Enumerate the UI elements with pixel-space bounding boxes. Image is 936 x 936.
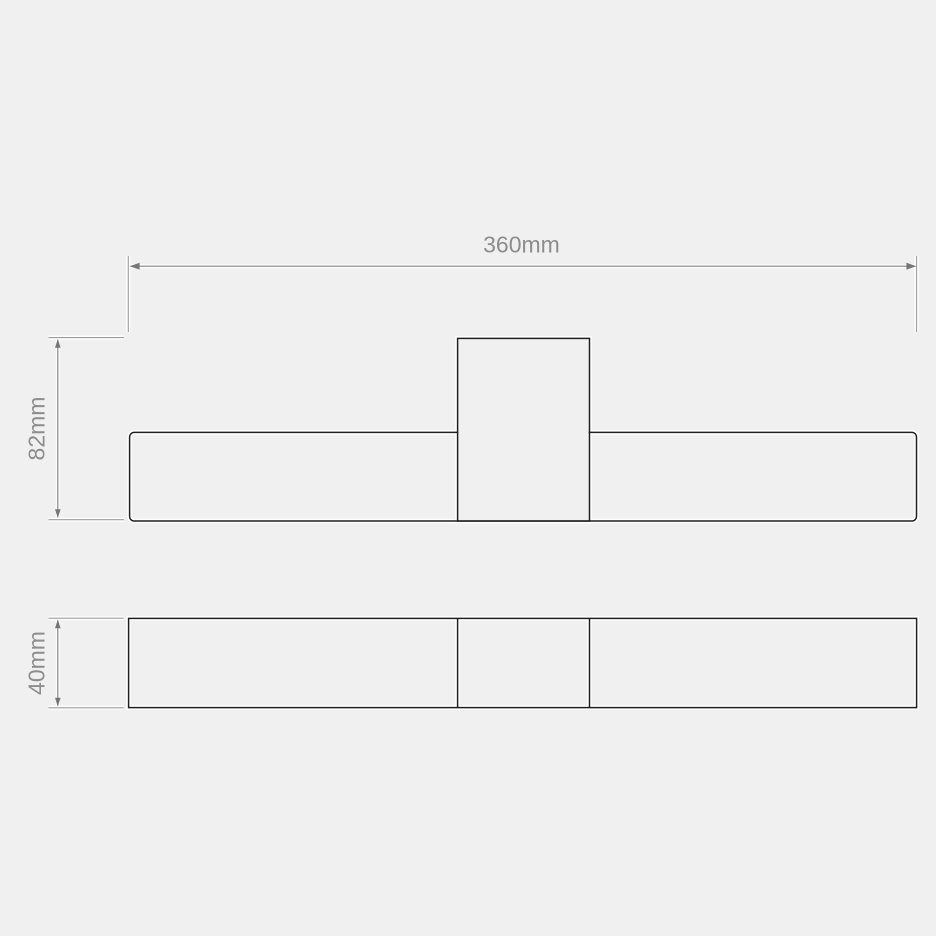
svg-text:82mm: 82mm bbox=[24, 397, 50, 461]
svg-text:360mm: 360mm bbox=[483, 232, 560, 258]
svg-text:40mm: 40mm bbox=[24, 631, 50, 695]
